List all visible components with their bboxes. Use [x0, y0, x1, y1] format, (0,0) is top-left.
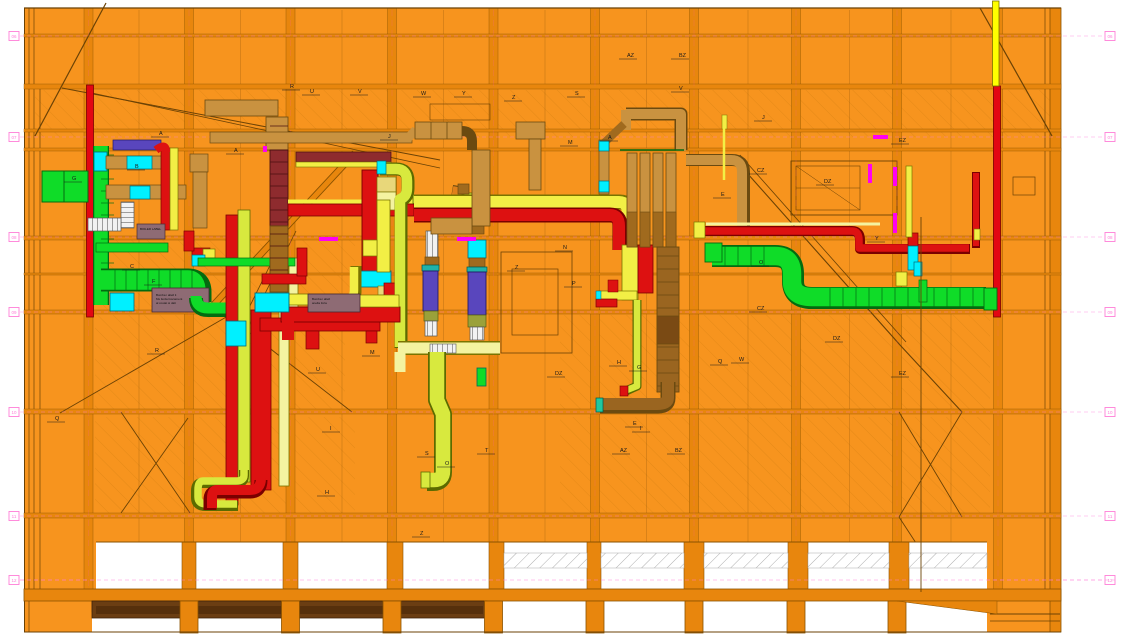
svg-text:BZ: BZ: [675, 448, 683, 454]
svg-text:AZ: AZ: [620, 448, 628, 454]
svg-text:A: A: [234, 148, 238, 154]
svg-text:Q: Q: [718, 359, 723, 365]
svg-text:U: U: [316, 367, 320, 373]
svg-text:S: S: [425, 451, 429, 457]
svg-text:09: 09: [1107, 310, 1113, 315]
svg-text:R: R: [155, 348, 159, 354]
svg-text:12: 12: [11, 578, 17, 583]
svg-text:N: N: [563, 245, 567, 251]
svg-text:08: 08: [1107, 235, 1113, 240]
svg-text:DZ: DZ: [555, 371, 563, 377]
svg-text:H: H: [617, 360, 621, 366]
svg-text:BOILER LABEL: BOILER LABEL: [140, 227, 162, 231]
svg-text:09: 09: [11, 310, 17, 315]
svg-text:DZ: DZ: [833, 336, 841, 342]
svg-text:C: C: [130, 264, 134, 270]
svg-text:M: M: [370, 350, 375, 356]
svg-text:O: O: [445, 461, 450, 467]
svg-text:10: 10: [1107, 410, 1113, 415]
svg-text:12: 12: [1107, 578, 1113, 583]
svg-text:M: M: [568, 140, 573, 146]
svg-text:AZ: AZ: [627, 53, 635, 59]
svg-text:B: B: [135, 164, 139, 170]
svg-text:P: P: [572, 281, 576, 287]
svg-text:W: W: [739, 357, 745, 363]
svg-text:06: 06: [1107, 34, 1113, 39]
svg-text:E: E: [721, 192, 725, 198]
svg-text:U: U: [310, 89, 314, 95]
svg-text:R: R: [290, 84, 294, 90]
svg-text:H: H: [325, 490, 329, 496]
svg-text:al costat si dalt: al costat si dalt: [156, 301, 176, 305]
svg-text:S: S: [575, 91, 579, 97]
svg-text:W: W: [421, 91, 427, 97]
svg-text:G: G: [637, 365, 641, 371]
svg-text:anella forta: anella forta: [312, 301, 327, 305]
svg-text:EZ: EZ: [899, 138, 907, 144]
svg-text:Y: Y: [462, 91, 466, 97]
svg-text:EZ: EZ: [899, 371, 907, 377]
svg-text:Q: Q: [55, 416, 60, 422]
svg-text:V: V: [358, 89, 362, 95]
svg-text:J: J: [388, 134, 391, 140]
svg-text:BZ: BZ: [679, 53, 687, 59]
svg-text:08: 08: [11, 235, 17, 240]
svg-text:E: E: [633, 421, 637, 427]
svg-text:CZ: CZ: [757, 168, 765, 174]
svg-text:G: G: [72, 176, 76, 182]
svg-text:Y: Y: [875, 236, 879, 242]
svg-text:DZ: DZ: [824, 179, 832, 185]
svg-text:06: 06: [11, 34, 17, 39]
svg-text:07: 07: [11, 135, 17, 140]
svg-text:CZ: CZ: [757, 306, 765, 312]
svg-text:J: J: [762, 115, 765, 121]
svg-text:A: A: [159, 131, 163, 137]
svg-text:10: 10: [11, 410, 17, 415]
svg-text:11: 11: [1108, 514, 1113, 519]
svg-text:O: O: [759, 260, 764, 266]
svg-text:A: A: [608, 135, 612, 141]
svg-text:11: 11: [12, 514, 17, 519]
svg-text:07: 07: [1107, 135, 1113, 140]
svg-text:V: V: [679, 86, 683, 92]
